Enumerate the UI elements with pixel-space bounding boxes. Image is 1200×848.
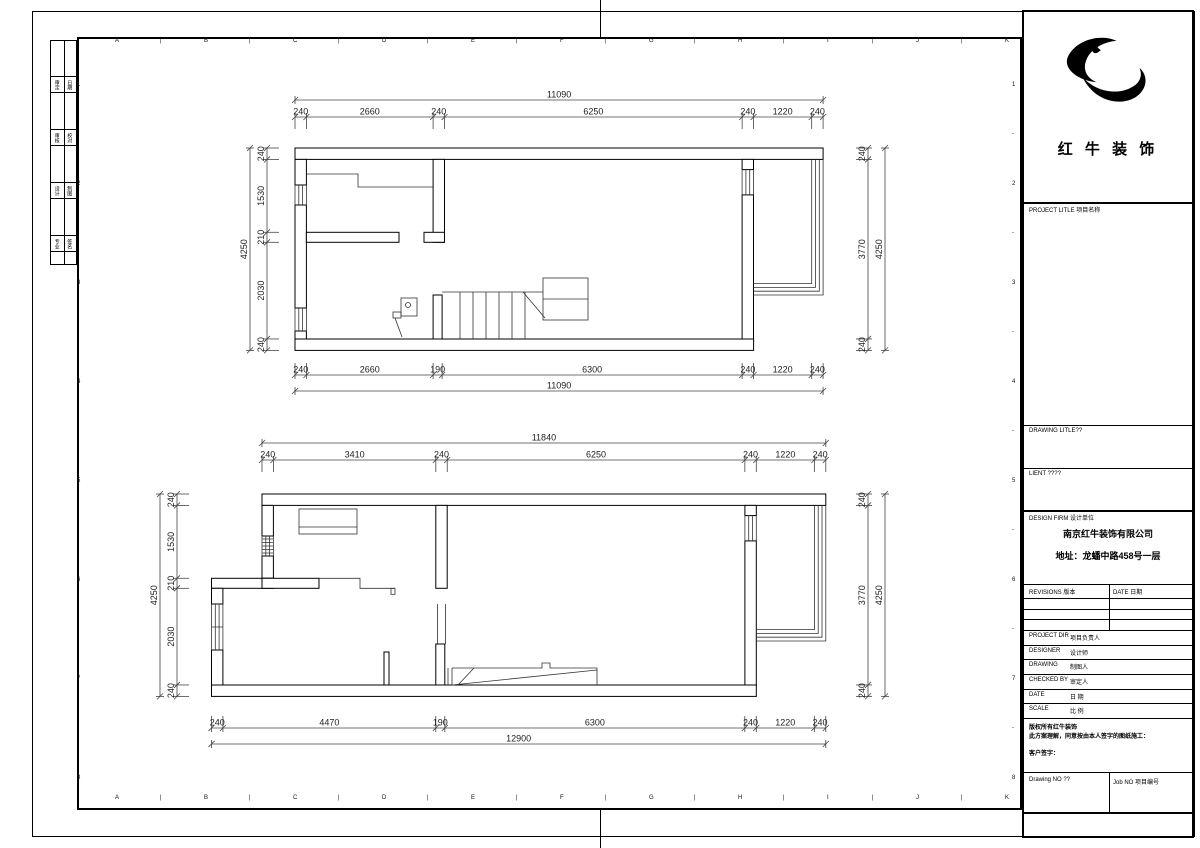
revisions-label: REVISIONS 版本 [1029,587,1075,596]
wall [295,148,823,159]
grid-ref: - [77,526,79,534]
dim-label: 4470 [319,718,339,728]
window [262,536,273,556]
dim-label: 3410 [345,450,365,460]
dim-label: 190 [433,718,448,728]
stair-void-diagonal [452,670,597,685]
grid-ref: - [1012,130,1014,138]
grid-ref: | [249,37,251,45]
dim-label: 2660 [360,107,380,117]
cad-canvas: 1109024026602406250240122024024026601906… [0,0,1200,848]
dim-label: 240 [857,683,867,698]
dim-label: 1220 [773,365,793,375]
grid-ref: F [560,37,564,45]
fixture-knob [406,303,411,308]
window [295,185,306,205]
grid-ref: 6 [1012,576,1015,584]
window [295,308,306,331]
partition-line [319,578,395,588]
wall [436,644,445,685]
field-en: DATE [1029,692,1045,698]
grid-ref: G [649,794,654,802]
grid-ref: C [293,37,297,45]
dim-label: 6250 [586,450,606,460]
grid-ref: | [516,37,518,45]
grid-ref: | [783,794,785,802]
customer-sign-label: 客户签字： [1029,748,1059,757]
brand-name: 红 牛 装 饰 [1024,138,1192,159]
grid-ref: 4 [77,378,80,386]
dim-label: 240 [810,107,825,117]
closet-line [306,174,433,187]
dim-label: 240 [293,107,308,117]
balcony-window [756,505,814,629]
grid-ref: | [605,794,607,802]
grid-ref: 5 [1012,477,1015,485]
dim-label: 240 [743,718,758,728]
dim-label: 1220 [775,450,795,460]
balcony-window [754,159,824,295]
grid-ref: - [1012,724,1014,732]
grid-ref: | [516,794,518,802]
grid-ref: | [160,794,162,802]
wall [306,232,399,242]
wall [212,588,223,604]
stair-treads [460,292,525,339]
grid-ref: J [916,794,919,802]
divider [1024,674,1192,675]
dim-label: 4250 [149,585,159,605]
divider [1024,468,1192,469]
window [742,170,753,195]
wall [745,541,756,685]
grid-ref: A [115,794,119,802]
drawing-title-label: DRAWING LITLE?? [1029,428,1082,434]
grid-ref: 3 [77,279,80,287]
window [745,516,756,541]
divider [1024,659,1192,660]
dim-label: 6300 [585,718,605,728]
firm-name: 南京红牛装饰有限公司 [1024,527,1192,540]
grid-ref: C [293,794,297,802]
grid-ref: 1 [1012,81,1015,89]
grid-ref: H [738,37,742,45]
grid-ref: - [77,229,79,237]
stair-break-line [523,292,545,318]
wall [262,556,273,578]
dim-label: 240 [293,365,308,375]
drawing-sheet: 审定 日期 审核 校对 设计 制图 专业 签名 [0,0,1200,848]
wall [212,685,757,696]
copyright-line2: 此方案理解，同意按由本人签字的图纸施工： [1029,731,1189,740]
divider [1024,718,1192,719]
field-en: PROJECT DIR [1029,633,1069,639]
grid-ref: 7 [77,675,80,683]
dim-label: 240 [813,718,828,728]
wall [742,195,753,339]
grid-ref: 5 [77,477,80,485]
second-floor-plan [212,494,826,696]
revisions-date-label: DATE 日期 [1113,587,1142,596]
grid-ref: I [827,37,829,45]
window [212,604,223,650]
balcony-window [754,159,812,283]
dim-label: 240 [743,450,758,460]
grid-ref: | [872,37,874,45]
wall [433,295,442,339]
dim-label: 240 [256,146,266,161]
dim-label: 6250 [583,107,603,117]
grid-ref: 2 [77,180,80,188]
dim-label: 190 [430,365,445,375]
grid-ref: | [427,37,429,45]
grid-ref: | [605,37,607,45]
copyright-line1: 版权所有红牛装饰 [1029,722,1077,731]
grid-ref: - [1012,229,1014,237]
dim-label: 240 [166,492,176,507]
divider [1024,645,1192,646]
wall [295,331,306,339]
grid-ref: - [1012,427,1014,435]
divider [1024,812,1192,814]
grid-ref: B [204,37,208,45]
balcony-window [756,505,826,641]
grid-ref: | [783,37,785,45]
stair-void-edge [448,668,452,685]
dim-label: 210 [256,230,266,245]
balcony-window [754,159,820,291]
balcony-window [754,159,816,287]
field-en: DRAWING [1029,662,1058,668]
dim-label: 240 [813,450,828,460]
dim-label: 240 [740,365,755,375]
divider [1024,202,1192,204]
firm-address: 地址：龙蟠中路458号一层 [1024,549,1192,562]
dim-label: 240 [434,450,449,460]
dim-label: 1530 [256,186,266,206]
grid-ref: - [77,427,79,435]
dim-label: 4250 [874,239,884,259]
grid-ref: B [204,794,208,802]
grid-ref: 1 [77,81,80,89]
grid-ref: 4 [1012,378,1015,386]
grid-ref: - [77,328,79,336]
divider [1024,630,1192,631]
balcony-window [756,505,822,637]
grid-ref: | [338,37,340,45]
dim-label: 4250 [874,585,884,605]
field-zh: 日 期 [1070,692,1084,701]
dim-label: 2030 [166,627,176,647]
field-zh: 审定人 [1070,677,1088,686]
field-en: SCALE [1029,706,1049,712]
dim-label: 240 [810,365,825,375]
stair-void-outline [452,663,597,685]
divider [1024,609,1192,610]
wall [745,505,756,515]
stair-void-diagonal [458,668,474,685]
dim-label: 3770 [857,585,867,605]
dim-label: 12900 [506,734,531,744]
grid-ref: - [1012,526,1014,534]
dimension-layer: 1109024026602406250240122024024026601906… [149,90,889,749]
bottom-divider [1109,772,1110,812]
grid-ref: 7 [1012,675,1015,683]
dim-label: 240 [260,450,275,460]
divider [1024,598,1192,599]
title-block: 红 牛 装 饰 PROJECT LITLE 项目名称 DRAWING LITLE… [1022,10,1194,838]
project-title-label: PROJECT LITLE 项目名称 [1029,205,1100,214]
wall [424,232,445,242]
dim-label: 240 [256,337,266,352]
grid-ref: A [115,37,119,45]
grid-ref: - [1012,625,1014,633]
field-zh: 制图人 [1070,662,1088,671]
dim-label: 240 [166,683,176,698]
grid-ref: | [160,37,162,45]
grid-ref: - [77,625,79,633]
dim-label: 3770 [857,239,867,259]
grid-ref: - [77,724,79,732]
divider [1024,510,1192,512]
grid-ref: | [961,37,963,45]
wall [295,339,754,350]
grid-ref: E [471,37,475,45]
grid-ref: | [961,794,963,802]
grid-ref: - [1012,328,1014,336]
fixture-line [395,318,402,337]
design-firm-label: DESIGN FIRM 设计单位 [1029,513,1094,522]
revisions-divider [1109,584,1110,630]
wall [295,159,306,185]
company-logo [1024,32,1192,111]
grid-ref: 6 [77,576,80,584]
wall [436,505,447,588]
dim-label: 11090 [547,381,571,391]
first-floor-plan [295,148,823,350]
wall [384,652,389,685]
dim-label: 240 [857,337,867,352]
field-zh: 设计师 [1070,648,1088,657]
grid-ref: J [916,37,919,45]
dim-label: 240 [857,146,867,161]
wall [742,159,753,169]
dim-label: 1220 [773,107,793,117]
wall [433,159,444,242]
grid-ref: E [471,794,475,802]
grid-ref: 8 [1012,774,1015,782]
divider [1024,689,1192,690]
grid-ref: 2 [1012,180,1015,188]
wall [262,494,826,505]
grid-ref: | [872,794,874,802]
dim-label: 1220 [775,718,795,728]
dim-label: 11840 [532,433,556,443]
grid-ref: D [382,37,386,45]
dim-label: 240 [740,107,755,117]
dim-label: 240 [210,718,225,728]
closet [299,509,357,534]
stair-wall-line [438,604,446,644]
grid-ref: | [249,794,251,802]
partition-stub [391,588,395,594]
grid-ref: | [338,794,340,802]
grid-ref: - [77,130,79,138]
client-label: LIENT ???? [1029,471,1061,477]
dim-label: 6300 [582,365,602,375]
grid-ref: 8 [77,774,80,782]
dim-label: 240 [857,492,867,507]
dim-label: 11090 [547,90,571,100]
grid-ref: 3 [1012,279,1015,287]
wall [212,650,223,685]
divider [1024,703,1192,704]
wall [295,205,306,308]
grid-ref: F [560,794,564,802]
dim-label: 240 [431,107,446,117]
divider [1024,584,1192,585]
job-no-label: Job NO 项目编号 [1113,777,1159,786]
balcony-window [756,505,818,633]
wall [262,505,273,536]
grid-ref: K [1005,794,1009,802]
grid-ref: | [694,794,696,802]
divider [1024,619,1192,620]
field-zh: 项目负责人 [1070,633,1100,642]
grid-ref: H [738,794,742,802]
dim-label: 4250 [239,239,249,259]
drawing-no-label: Drawing NO ?? [1029,777,1070,783]
dim-label: 2660 [360,365,380,375]
grid-ref: | [694,37,696,45]
fixture [393,312,401,318]
grid-ref: D [382,794,386,802]
grid-ref: | [427,794,429,802]
dim-label: 1530 [166,532,176,552]
dim-label: 210 [166,576,176,591]
grid-ref: G [649,37,654,45]
field-en: DESIGNER [1029,648,1060,654]
field-zh: 比 例 [1070,706,1084,715]
wall [262,578,319,588]
bull-logo-icon [1058,32,1158,111]
field-en: CHECKED BY [1029,677,1068,683]
dim-label: 2030 [256,281,266,301]
divider [1024,772,1192,773]
grid-ref: K [1005,37,1009,45]
grid-ref: I [827,794,829,802]
divider [1024,425,1192,426]
